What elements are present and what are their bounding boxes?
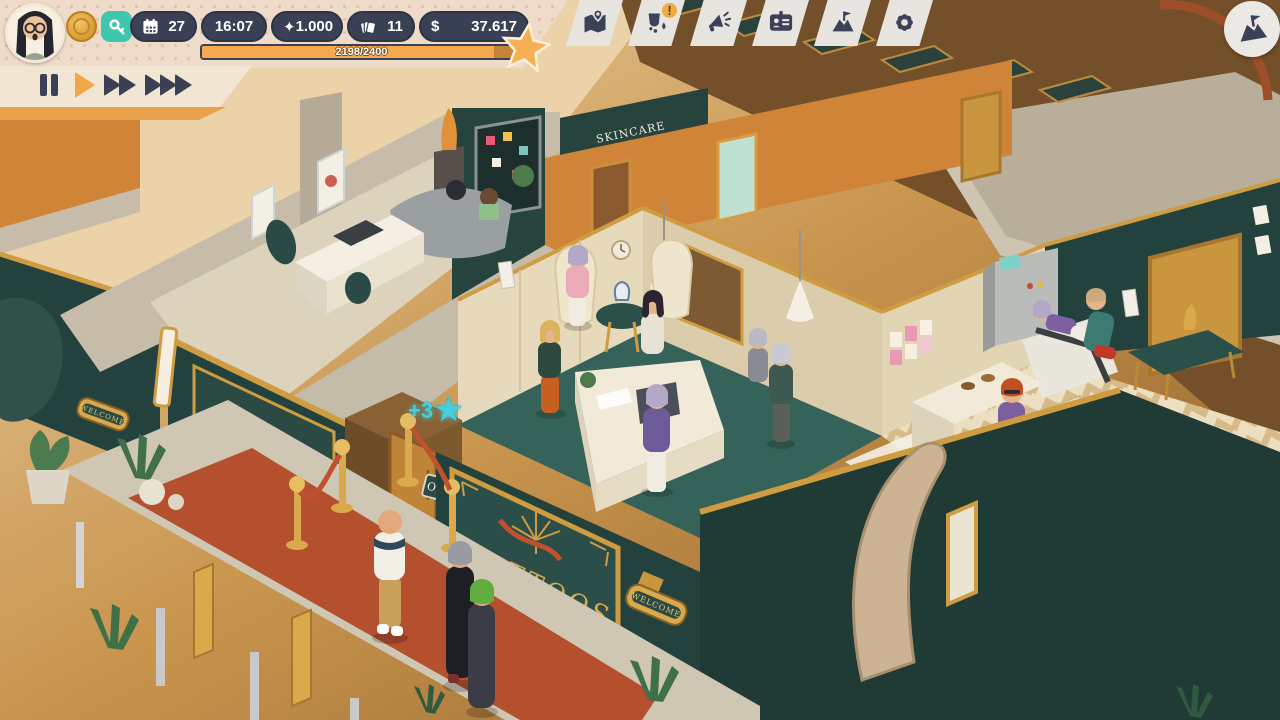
sparkle-icon: ✦ <box>283 18 296 36</box>
key-button[interactable] <box>101 11 132 42</box>
tickets-counter[interactable]: 11 <box>347 11 415 42</box>
xp-star-icon <box>501 22 551 72</box>
desk-plant <box>580 372 596 388</box>
settings-gear-icon <box>891 9 918 36</box>
beauty-points-counter[interactable]: ✦ 1.000 <box>271 11 343 42</box>
door-gold-back[interactable] <box>962 92 1000 181</box>
cards-icon <box>359 18 377 36</box>
beauty-value: 1.000 <box>296 18 334 35</box>
play-icon <box>75 72 95 98</box>
key-icon <box>107 17 127 37</box>
map-icon <box>581 8 609 36</box>
speed-controls <box>40 72 188 98</box>
goals-flag-icon <box>829 8 857 36</box>
fast-forward-button[interactable] <box>104 74 132 96</box>
marketing-button[interactable] <box>690 0 747 46</box>
plant-pot <box>512 165 534 187</box>
player-avatar[interactable] <box>5 3 65 63</box>
speed-bar-accent <box>0 107 226 120</box>
player-portrait <box>8 6 62 60</box>
character-customer-gray[interactable] <box>748 328 768 382</box>
main-toolbar: ! <box>566 0 933 46</box>
settings-button[interactable] <box>876 0 933 46</box>
character-receptionist[interactable] <box>641 290 664 354</box>
seated-customer[interactable] <box>446 180 466 200</box>
tickets-value: 11 <box>387 18 403 35</box>
day-counter[interactable]: 27 <box>130 11 197 42</box>
xp-gain-star-icon: ★ <box>435 396 462 426</box>
trash-bin[interactable] <box>345 272 371 304</box>
calendar-icon <box>142 18 159 35</box>
fastest-forward-button[interactable] <box>145 74 188 96</box>
door-mint[interactable] <box>718 134 756 221</box>
character-pedestrian-green-hair[interactable] <box>466 579 498 718</box>
decor-sphere <box>139 479 165 505</box>
alert-badge: ! <box>660 1 679 20</box>
vase <box>615 282 629 300</box>
pause-button[interactable] <box>40 74 62 96</box>
pause-icon <box>40 74 47 96</box>
play-button[interactable] <box>75 72 91 98</box>
marketing-megaphone-icon <box>705 8 733 36</box>
display-window <box>948 503 976 604</box>
clock-display[interactable]: 16:07 <box>201 11 267 42</box>
goals-button[interactable] <box>814 0 871 46</box>
map-button[interactable] <box>566 0 623 46</box>
staff-button[interactable] <box>752 0 809 46</box>
day-value: 27 <box>168 18 185 35</box>
game-screen: SKINCARE <box>0 0 1280 720</box>
staff-id-card-icon <box>767 8 795 36</box>
xp-gain-popup: +3 ★ <box>408 396 462 426</box>
time-value: 16:07 <box>215 18 253 35</box>
seated-customer-2[interactable] <box>480 188 498 206</box>
xp-progress-label: 2198/2400 <box>200 44 523 60</box>
cleanliness-button[interactable]: ! <box>628 0 685 46</box>
gold-coin-icon <box>66 11 97 42</box>
currency-symbol: $ <box>431 18 439 35</box>
decor-sphere-2 <box>168 494 184 510</box>
xp-gain-amount: +3 <box>408 398 433 424</box>
milestone-mountain-flag-icon <box>1232 9 1271 48</box>
